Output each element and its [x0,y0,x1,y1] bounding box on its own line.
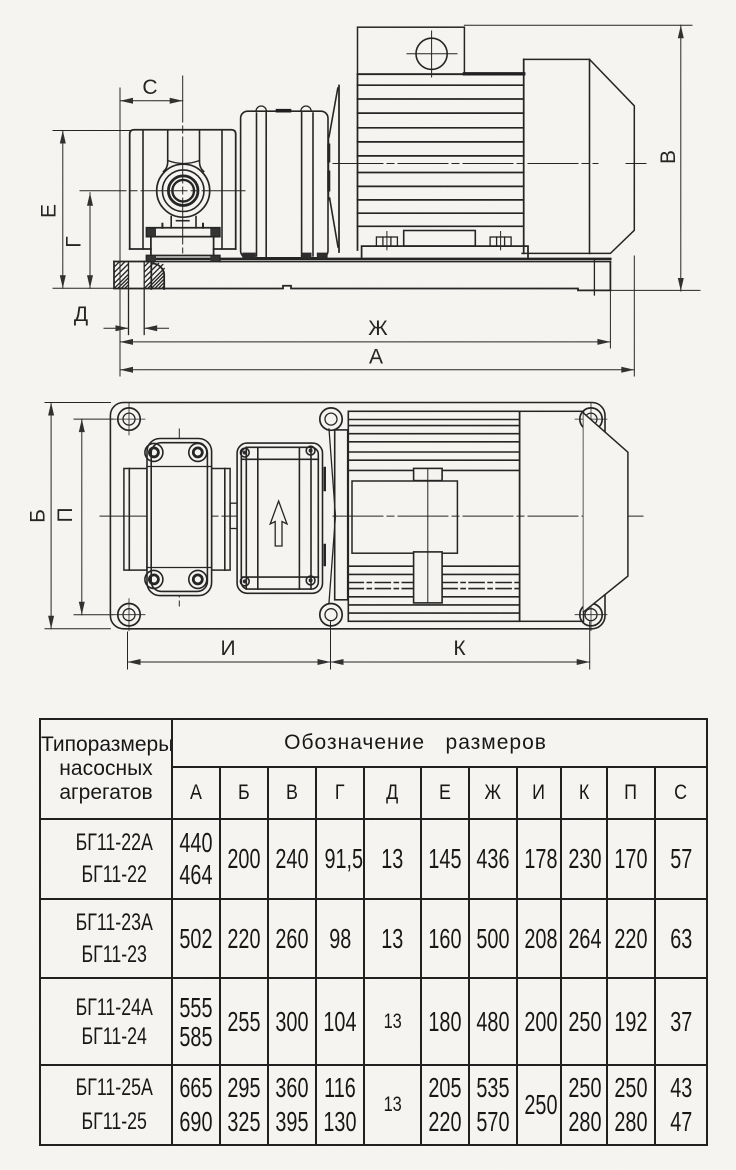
svg-text:А: А [369,346,383,369]
svg-text:К: К [453,637,466,660]
svg-text:Е: Е [38,204,61,218]
svg-text:Г: Г [63,236,86,247]
svg-text:Д: Д [74,303,88,326]
svg-text:И: И [220,637,235,660]
svg-text:В: В [657,150,680,164]
svg-text:П: П [54,507,77,522]
svg-text:С: С [142,76,157,99]
svg-text:Б: Б [27,509,50,523]
svg-text:Ж: Ж [368,317,388,340]
